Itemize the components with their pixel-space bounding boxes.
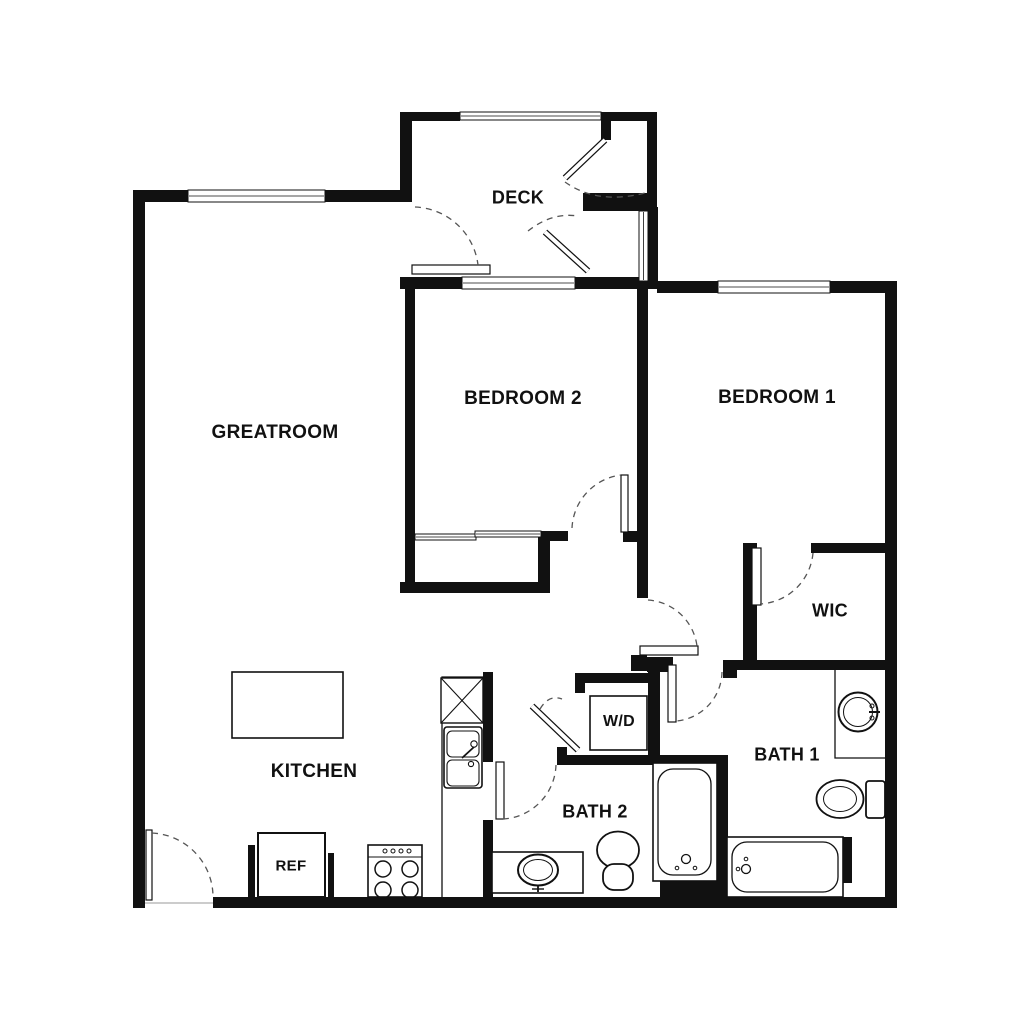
bath1-toilet (824, 787, 857, 812)
wall-segment (405, 277, 415, 593)
wall-segment (623, 531, 638, 542)
bath1-vanity-sink (844, 698, 873, 727)
floor-plan-svg (0, 0, 1024, 1024)
wall-segment (723, 660, 897, 670)
kitchen-sink (447, 731, 479, 757)
wall-segment (637, 283, 648, 598)
floor-plan: GREATROOM DECK BEDROOM 2 BEDROOM 1 WIC B… (0, 0, 1024, 1024)
wall-segment (723, 660, 737, 678)
wall-segment (133, 190, 145, 908)
door-leaf-angled-inner (545, 232, 588, 271)
wall-segment (400, 112, 460, 121)
bath1-tub (732, 842, 838, 892)
door-leaf (412, 265, 490, 274)
room-label-wic: WIC (812, 601, 848, 622)
door-leaf (752, 548, 761, 605)
door-leaf (668, 665, 676, 722)
wall-segment (631, 655, 647, 671)
door-swing-arc (152, 833, 213, 897)
room-label-kitchen: KITCHEN (271, 761, 358, 783)
door-swing-arc (648, 600, 697, 646)
wall-segment (213, 897, 897, 908)
door-swing-arc (540, 698, 562, 709)
door-leaf (640, 646, 698, 655)
door-leaf (496, 762, 504, 819)
door-swing-arc (760, 553, 813, 604)
door-leaf-angled-inner (565, 140, 605, 178)
wall-segment (601, 112, 611, 140)
wall-segment (583, 193, 657, 211)
bath1-toilet (866, 781, 885, 818)
wall-segment (325, 190, 412, 202)
wall-segment (657, 281, 718, 293)
wall-segment (483, 672, 493, 762)
door-leaf-angled-inner (532, 706, 578, 750)
door-swing-arc (676, 672, 722, 721)
room-label-bath1: BATH 1 (754, 745, 819, 766)
door-swing-arc (503, 765, 556, 819)
room-label-bath2: BATH 2 (562, 802, 627, 823)
door-swing-arc (528, 215, 578, 231)
wall-segment (400, 582, 550, 593)
room-label-bedroom2: BEDROOM 2 (464, 388, 582, 410)
wall-segment (811, 543, 897, 553)
wall-segment (575, 673, 660, 683)
wall-segment (648, 207, 658, 283)
bath2-toilet (597, 832, 639, 869)
wall-segment (133, 190, 188, 202)
wall-segment (885, 281, 897, 908)
wall-segment (248, 845, 255, 897)
room-label-bedroom1: BEDROOM 1 (718, 387, 836, 409)
room-label-greatroom: GREATROOM (212, 422, 339, 444)
kitchen-sink (447, 760, 479, 786)
wall-segment (575, 673, 585, 693)
bath2-toilet (603, 864, 633, 890)
appliance-label-washer-dryer: W/D (603, 713, 635, 731)
door-leaf (621, 475, 628, 532)
kitchen-island (232, 672, 343, 738)
door-leaf (146, 830, 152, 900)
door-swing-arc (415, 207, 478, 265)
range-stove (368, 845, 422, 897)
room-label-deck: DECK (492, 188, 544, 209)
wall-segment (648, 672, 660, 765)
appliance-label-refrigerator: REF (276, 858, 307, 875)
wall-segment (328, 853, 334, 897)
wall-segment (400, 112, 412, 190)
wall-segment (843, 837, 852, 883)
door-swing-arc (572, 475, 621, 528)
bath2-tub (658, 769, 711, 875)
